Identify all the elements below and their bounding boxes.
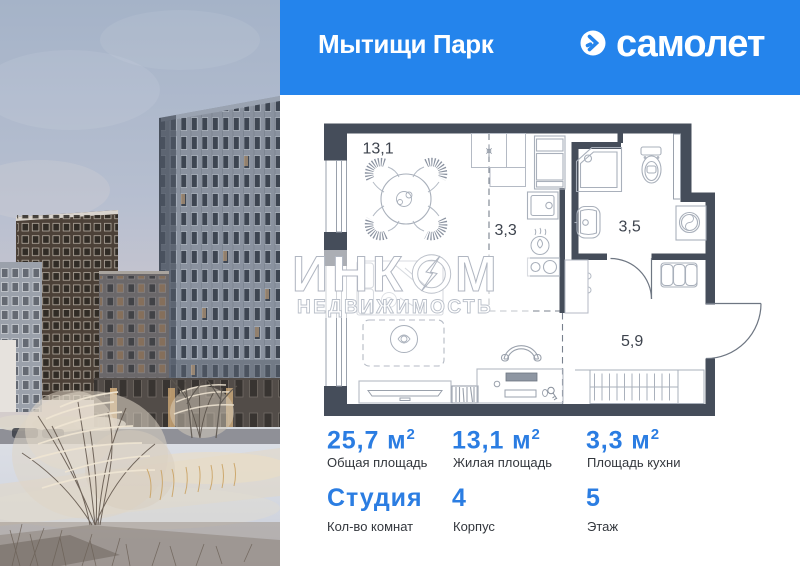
svg-text:НЕДВИЖИМОСТЬ: НЕДВИЖИМОСТЬ	[297, 297, 493, 318]
svg-text:ИНК: ИНК	[292, 246, 407, 302]
svg-text:13,1: 13,1	[363, 141, 394, 158]
svg-text:М: М	[455, 246, 497, 302]
svg-text:3,5: 3,5	[619, 219, 641, 236]
svg-text:3,3: 3,3	[495, 222, 517, 239]
svg-text:5,9: 5,9	[621, 333, 643, 350]
